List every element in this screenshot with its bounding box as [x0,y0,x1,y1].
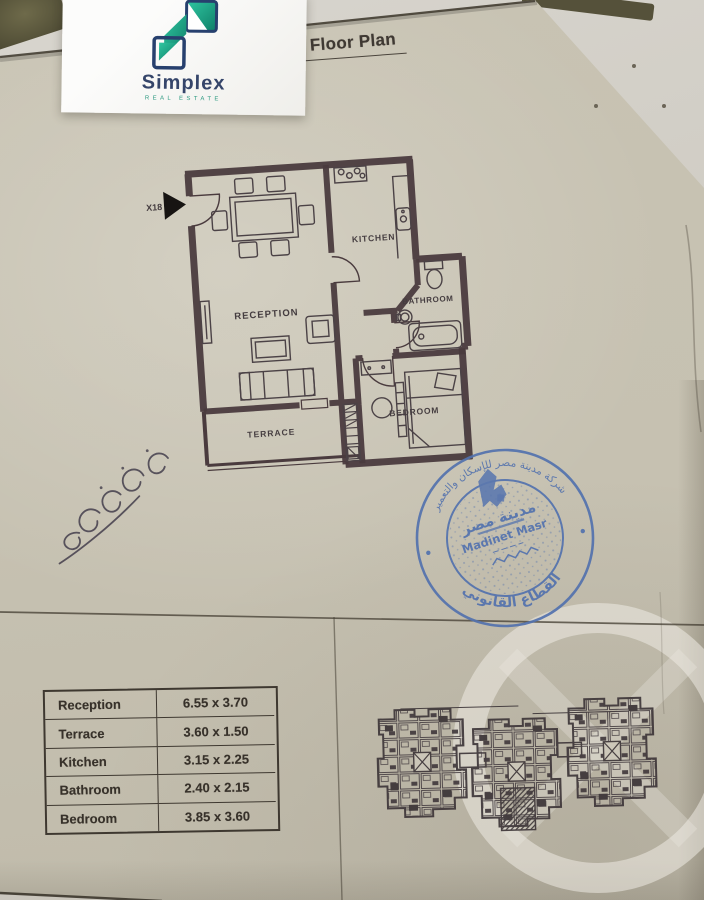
bedroom-furniture [361,356,466,451]
table-cell-size: 3.60 x 1.50 [157,716,274,746]
kitchen-fixtures [334,163,416,262]
company-stamp: شركة مدينة مصر للإسكان والتعمير القطاع ا… [392,425,618,651]
brand-name: Simplex [142,72,226,93]
reception-furniture [192,173,339,402]
brand-logo-icon [134,0,235,73]
table-cell-room: Kitchen [46,747,158,777]
brand-card: Simplex Real Estate [61,0,307,116]
table-cell-room: Bathroom [46,775,158,805]
table-cell-size: 2.40 x 2.15 [158,773,275,803]
building-key-plan [370,688,666,848]
table-cell-size: 3.85 x 3.60 [159,802,276,831]
floor-plan-label-bedroom: BEDROOM [389,405,440,418]
table-cell-room: Bedroom [47,804,159,833]
photo-of-floor-plan-document: { "brand": { "name": "Simplex", "tagline… [0,0,704,900]
table-cell-room: Reception [45,690,157,720]
table-cell-size: 3.15 x 2.25 [158,745,275,775]
door-swings [189,181,423,398]
dimensions-table: Reception 6.55 x 3.70 Terrace 3.60 x 1.5… [43,686,280,835]
floor-plan-label-reception: RECEPTION [234,307,299,322]
background-foliage-top-left [0,0,70,51]
floor-plan-label-terrace: TERRACE [247,427,296,440]
unit-label: X18 [146,202,163,213]
floor-plan-label-kitchen: KITCHEN [352,232,396,245]
entrance-arrow-icon [163,190,187,219]
table-cell-room: Terrace [45,718,157,748]
table-cell-size: 6.55 x 3.70 [157,688,274,718]
brand-tagline: Real Estate [145,95,222,102]
